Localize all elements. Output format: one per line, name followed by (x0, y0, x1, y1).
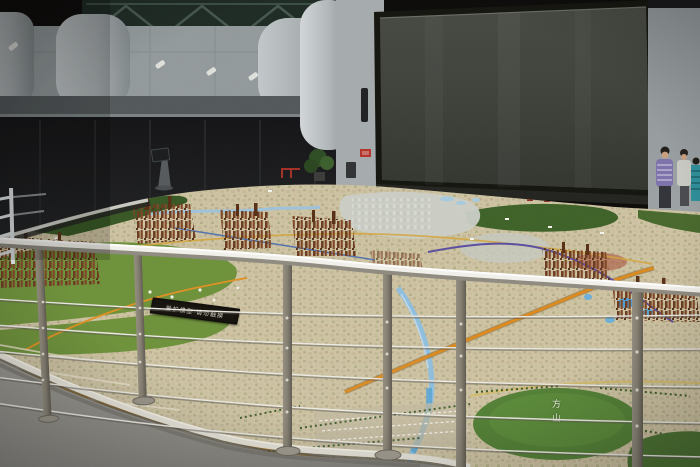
exhibition-hall-photo: 方山 爱护模型 请勿触摸 (0, 0, 700, 467)
photo-grain (0, 0, 700, 467)
railing-layer (0, 0, 700, 467)
